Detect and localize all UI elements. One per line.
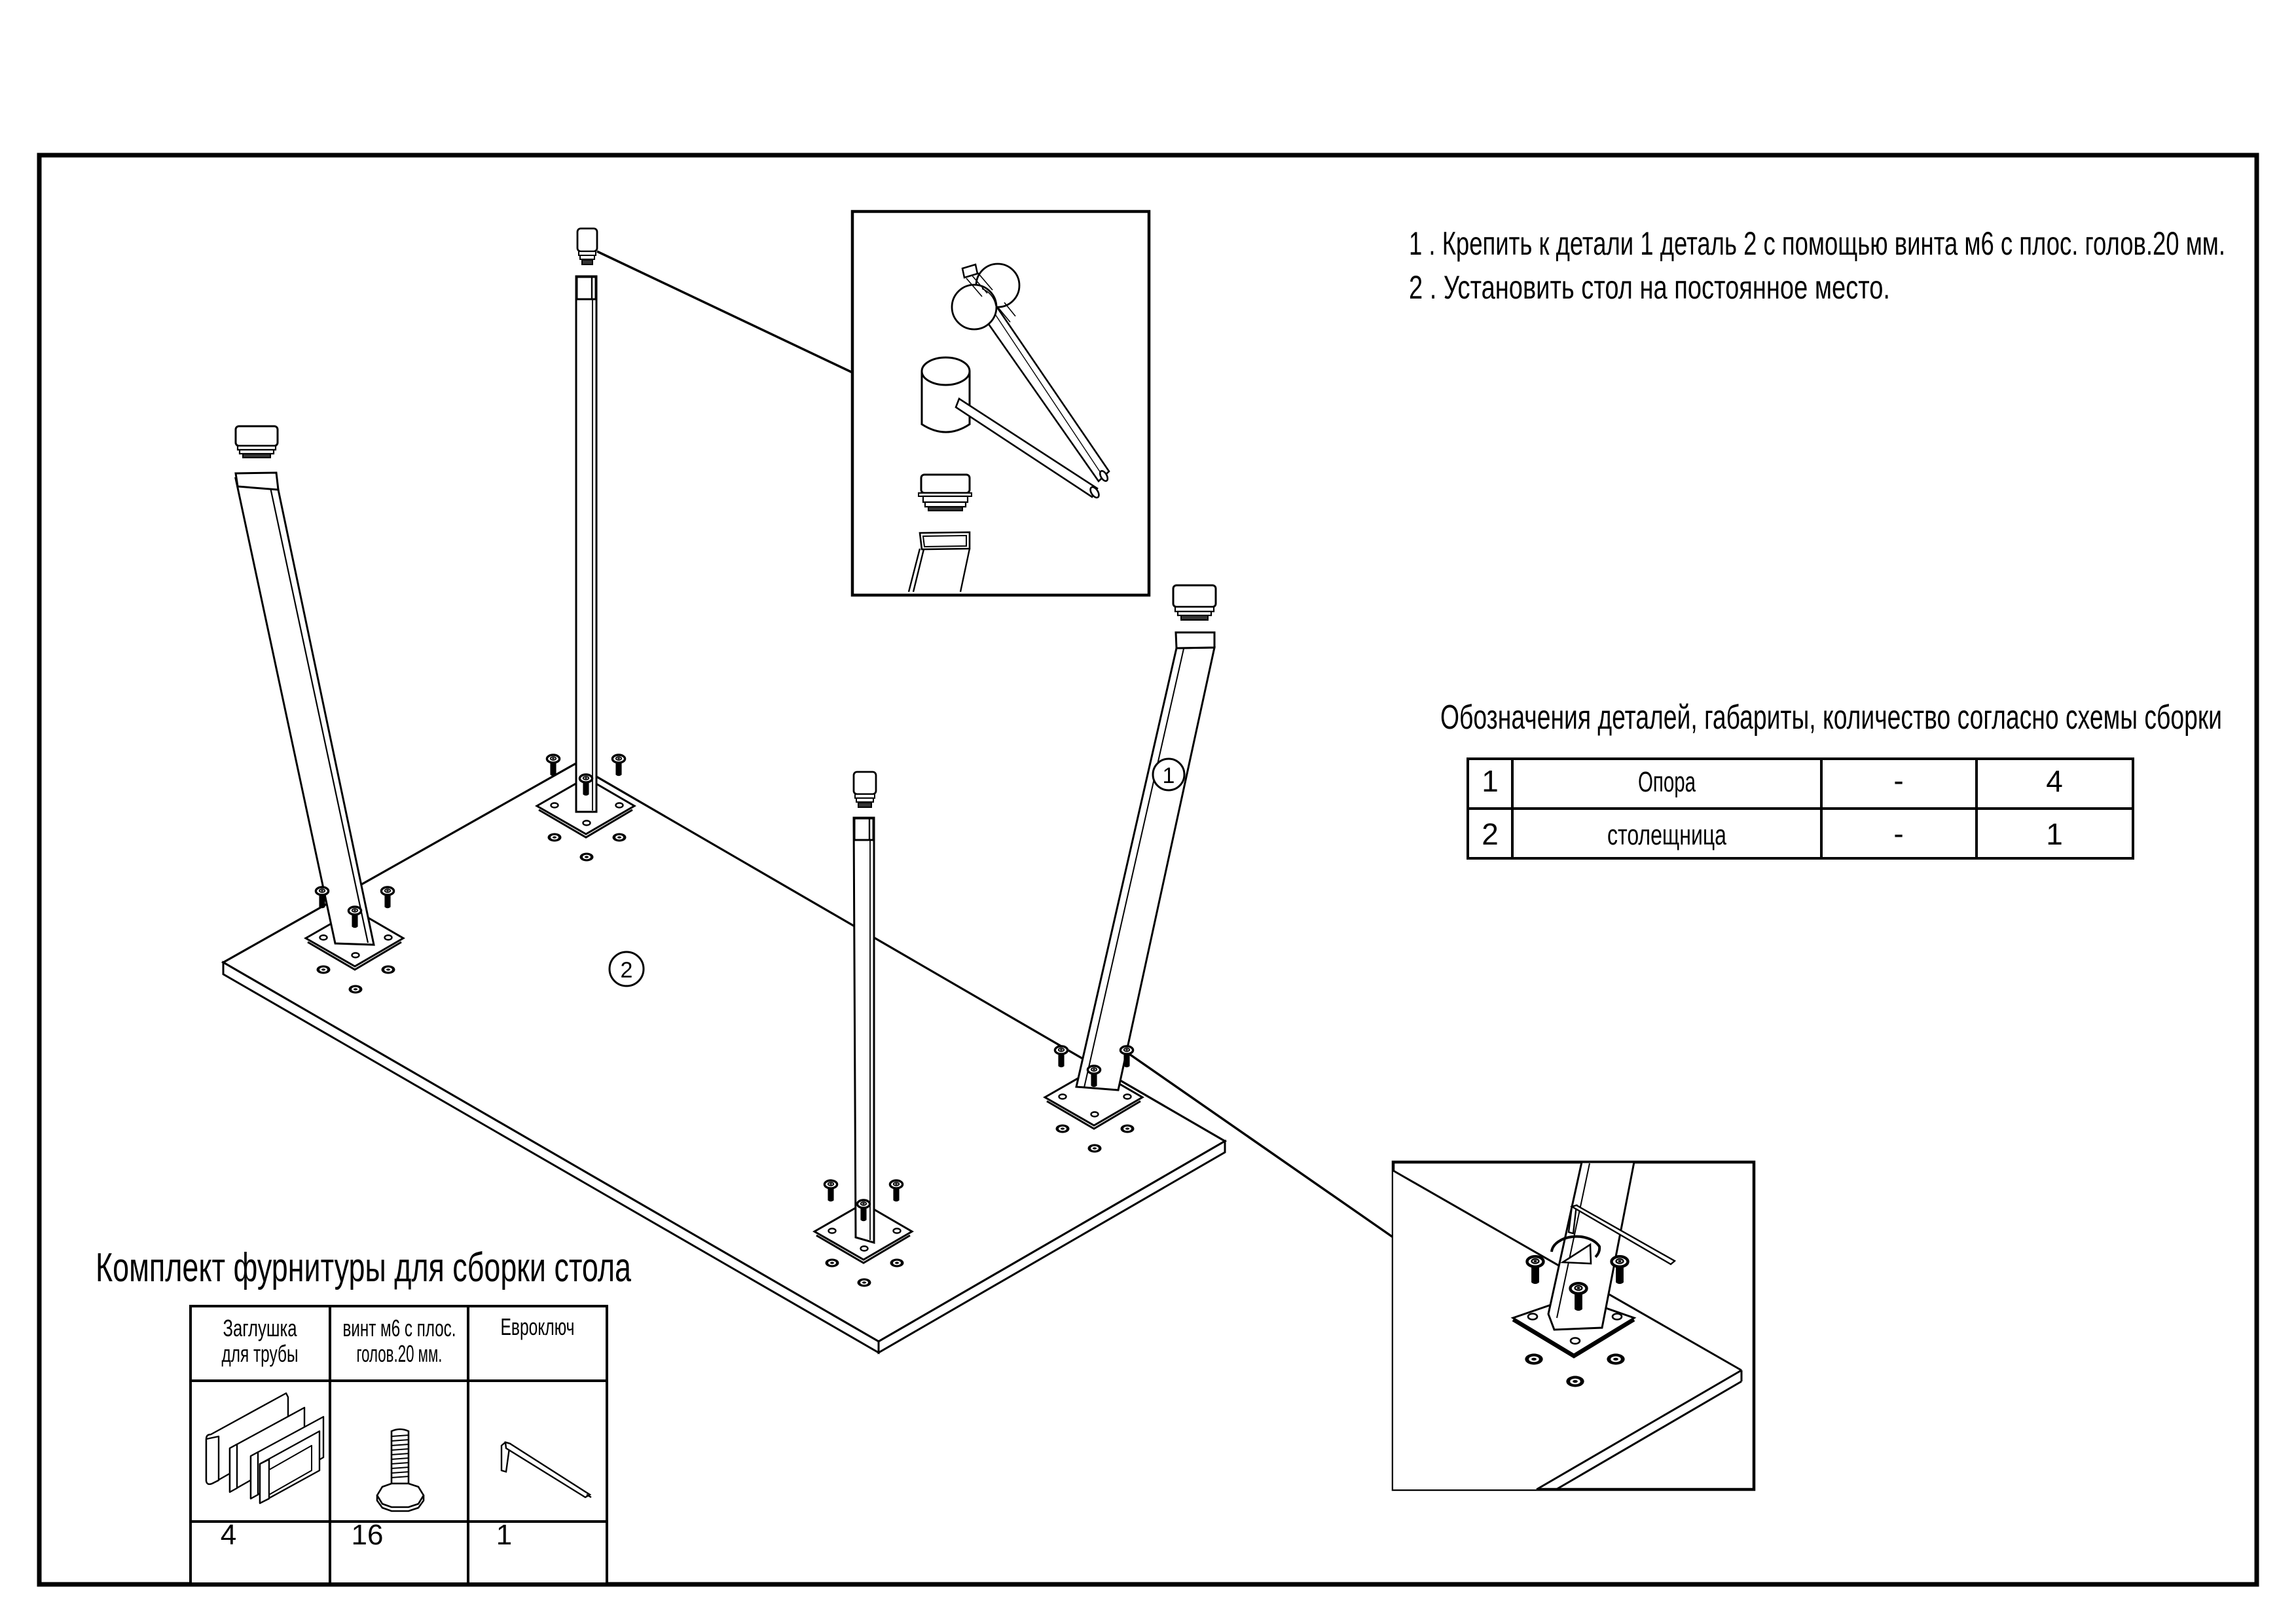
svg-text:Опора: Опора	[1638, 766, 1696, 798]
svg-text:Заглушка: Заглушка	[223, 1315, 298, 1341]
svg-text:винт м6 с плос.: винт м6 с плос.	[343, 1315, 456, 1341]
svg-text:-: -	[1893, 763, 1903, 797]
svg-text:-: -	[1893, 816, 1903, 850]
svg-text:голов.20 мм.: голов.20 мм.	[357, 1340, 443, 1367]
svg-text:1: 1	[2046, 817, 2063, 851]
svg-text:1 . Крепить к детали 1 деталь: 1 . Крепить к детали 1 деталь 2 с помощь…	[1409, 225, 2225, 262]
svg-text:1: 1	[1163, 763, 1175, 788]
svg-text:Обозначения деталей, габариты,: Обозначения деталей, габариты, количеств…	[1440, 699, 2222, 737]
svg-text:16: 16	[352, 1519, 384, 1551]
svg-text:для трубы: для трубы	[222, 1340, 299, 1367]
svg-text:4: 4	[2046, 764, 2063, 798]
svg-text:1: 1	[496, 1519, 512, 1551]
svg-text:2 . Установить стол на постоян: 2 . Установить стол на постоянное место.	[1409, 269, 1890, 306]
svg-text:4: 4	[221, 1519, 236, 1551]
svg-text:2: 2	[1482, 817, 1499, 851]
svg-text:Комплект фурнитуры для сборки: Комплект фурнитуры для сборки стола	[96, 1245, 631, 1290]
svg-text:2: 2	[621, 958, 633, 983]
svg-text:Евроключ: Евроключ	[501, 1313, 575, 1340]
svg-text:1: 1	[1482, 764, 1499, 798]
svg-text:столещница: столещница	[1607, 819, 1726, 851]
